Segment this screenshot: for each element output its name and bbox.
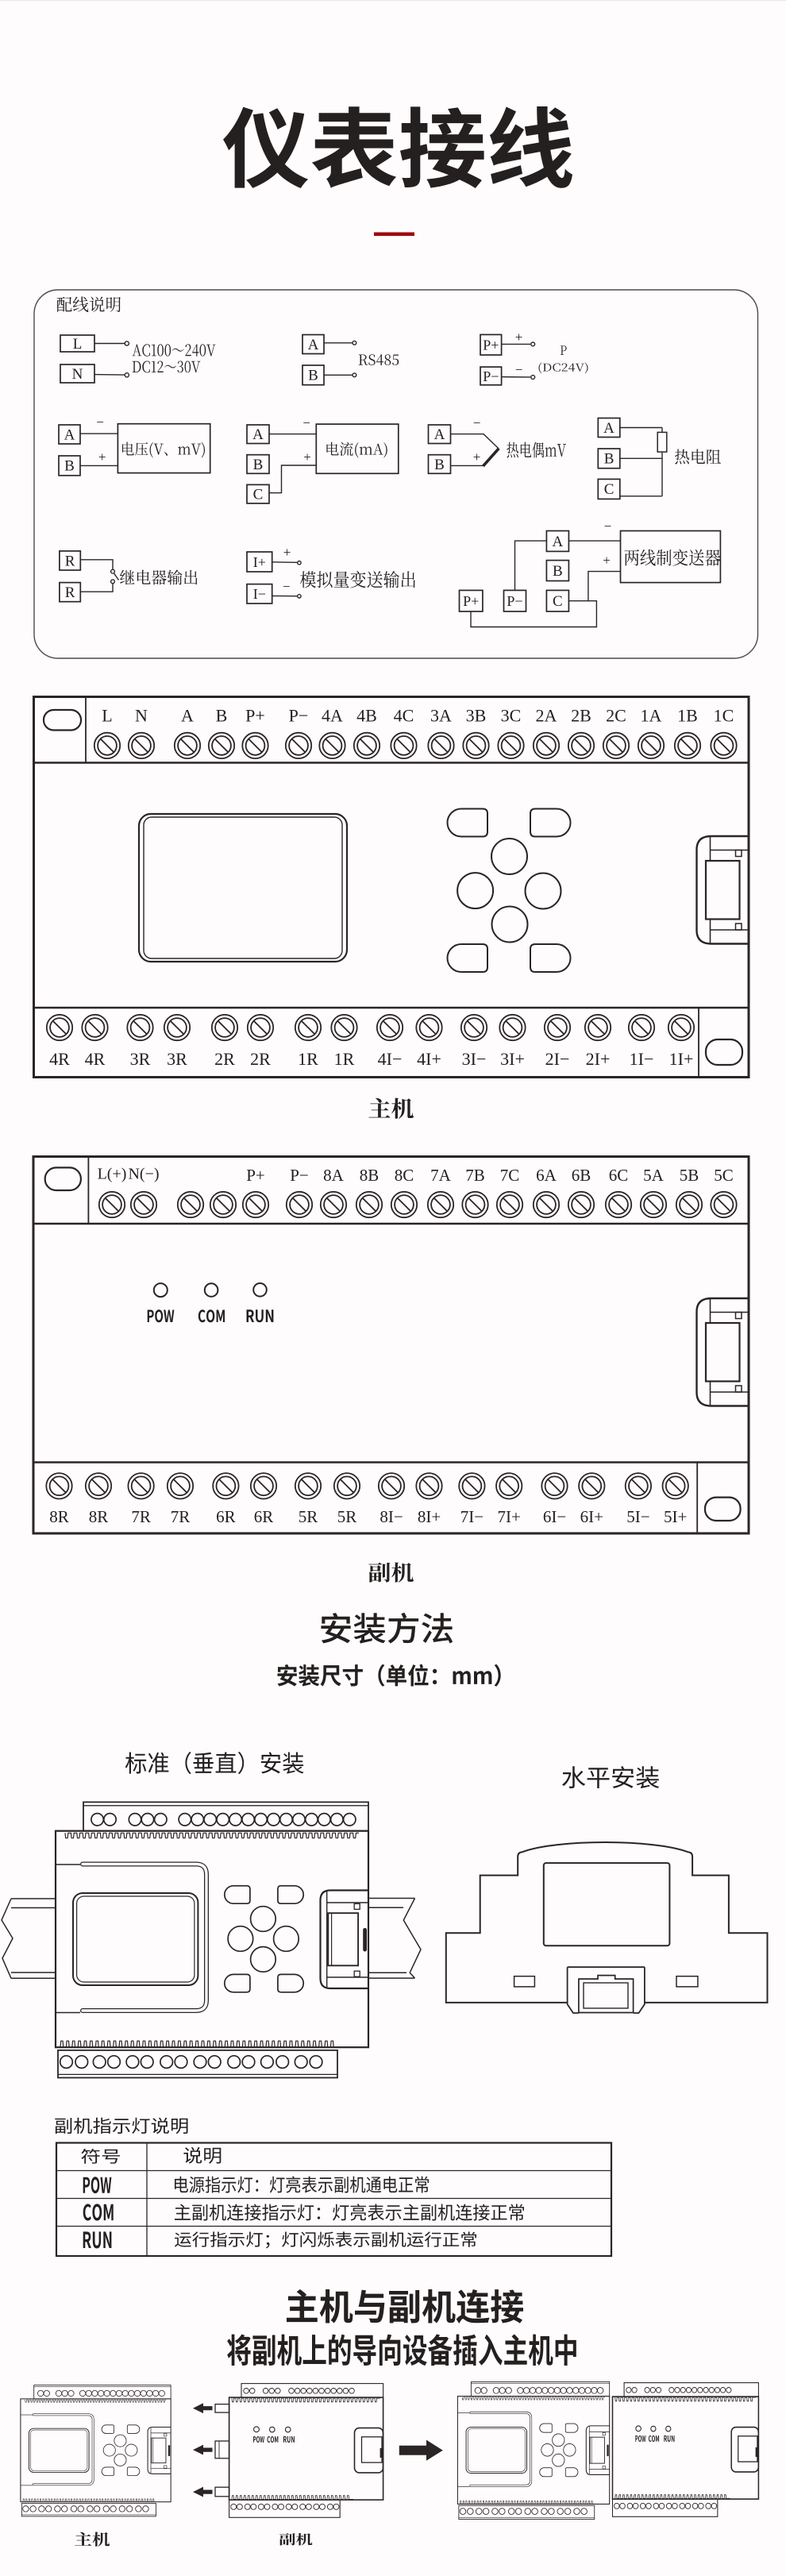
svg-text:C: C [253,486,264,503]
svg-text:3R: 3R [130,1049,151,1069]
svg-text:P−: P− [507,593,522,609]
svg-text:8A: 8A [323,1166,345,1185]
svg-text:1B: 1B [677,706,698,726]
svg-text:B: B [604,451,615,468]
svg-text:−: − [515,362,523,377]
svg-text:3C: 3C [501,706,522,726]
svg-text:4R: 4R [49,1049,70,1069]
svg-text:2R: 2R [250,1049,271,1069]
svg-text:N: N [72,366,83,383]
svg-text:P+: P+ [463,593,479,609]
svg-text:7I+: 7I+ [498,1507,521,1526]
svg-text:3A: 3A [430,706,452,726]
svg-text:1R: 1R [334,1049,355,1069]
svg-text:I−: I− [253,586,266,602]
svg-text:−: − [283,579,291,594]
svg-text:7R: 7R [131,1507,151,1526]
svg-text:8B: 8B [360,1166,380,1185]
svg-text:7B: 7B [465,1166,485,1185]
svg-text:8I+: 8I+ [418,1507,441,1526]
svg-text:4A: 4A [322,706,343,726]
svg-text:4C: 4C [394,706,414,726]
svg-text:4R: 4R [85,1049,106,1069]
svg-text:C: C [553,593,563,610]
svg-text:B: B [64,458,75,475]
svg-text:6B: 6B [572,1166,591,1185]
svg-text:P−: P− [290,1166,309,1185]
svg-text:L(+): L(+) [98,1166,127,1183]
svg-text:7A: 7A [430,1166,452,1185]
svg-text:5A: 5A [643,1166,665,1185]
svg-text:C: C [604,481,615,498]
svg-text:6C: 6C [609,1166,629,1185]
svg-text:7C: 7C [500,1166,520,1185]
svg-text:5I−: 5I− [626,1507,649,1526]
svg-text:+: + [603,553,611,568]
svg-text:5B: 5B [680,1166,699,1185]
svg-text:B: B [253,457,264,473]
svg-text:3I−: 3I− [462,1049,487,1069]
svg-text:+: + [515,330,523,345]
svg-text:8I−: 8I− [380,1507,403,1526]
svg-text:1C: 1C [714,706,734,726]
svg-text:−: − [302,415,310,430]
svg-text:5R: 5R [299,1507,318,1526]
svg-text:+: + [473,449,481,465]
svg-text:4B: 4B [356,706,377,726]
svg-text:B: B [308,368,318,384]
svg-text:2B: 2B [571,706,591,726]
svg-text:6R: 6R [216,1507,236,1526]
svg-text:6I+: 6I+ [580,1507,603,1526]
svg-text:P+: P+ [245,706,265,726]
svg-text:4I+: 4I+ [417,1049,441,1069]
svg-text:2A: 2A [536,706,557,726]
svg-text:8R: 8R [89,1507,109,1526]
svg-text:8R: 8R [49,1507,69,1526]
svg-text:P+: P+ [483,337,499,353]
svg-text:I+: I+ [253,554,266,570]
svg-text:7R: 7R [171,1507,191,1526]
svg-text:A: A [603,420,615,437]
svg-text:3R: 3R [167,1049,187,1069]
svg-text:2R: 2R [214,1049,235,1069]
svg-text:7I−: 7I− [460,1507,484,1526]
svg-text:+: + [98,449,106,465]
svg-text:A: A [308,337,319,353]
svg-text:−: − [473,415,481,430]
svg-text:N(−): N(−) [128,1166,159,1183]
svg-text:2I−: 2I− [545,1049,570,1069]
svg-text:−: − [604,519,612,534]
svg-text:N: N [135,706,148,726]
svg-text:P−: P− [289,706,309,726]
svg-text:B: B [553,563,563,580]
svg-text:1I−: 1I− [630,1049,654,1069]
svg-text:5R: 5R [337,1507,357,1526]
svg-text:R: R [65,584,75,601]
svg-text:6A: 6A [536,1166,557,1185]
svg-text:5I+: 5I+ [664,1507,687,1526]
svg-text:B: B [216,706,228,726]
svg-text:R: R [65,553,75,569]
svg-text:6R: 6R [254,1507,274,1526]
svg-text:8C: 8C [395,1166,414,1185]
svg-text:L: L [73,336,83,353]
svg-text:4I−: 4I− [378,1049,403,1069]
svg-text:A: A [64,426,75,443]
svg-text:−: − [96,415,104,430]
svg-text:L: L [102,706,112,726]
svg-text:+: + [303,449,311,465]
svg-text:3I+: 3I+ [500,1049,525,1069]
svg-text:3B: 3B [466,706,487,726]
svg-text:A: A [434,426,445,443]
svg-text:+: + [283,545,291,560]
svg-text:2C: 2C [606,706,626,726]
svg-text:A: A [553,534,564,550]
svg-text:1I+: 1I+ [669,1049,694,1069]
svg-text:1A: 1A [641,706,662,726]
svg-text:A: A [181,706,194,726]
svg-text:A: A [252,426,264,443]
svg-text:2I+: 2I+ [586,1049,611,1069]
svg-text:5C: 5C [714,1166,734,1185]
svg-text:1R: 1R [298,1049,318,1069]
svg-text:B: B [434,457,445,473]
svg-text:P−: P− [483,368,499,384]
svg-text:P+: P+ [246,1166,265,1185]
svg-text:6I−: 6I− [543,1507,566,1526]
